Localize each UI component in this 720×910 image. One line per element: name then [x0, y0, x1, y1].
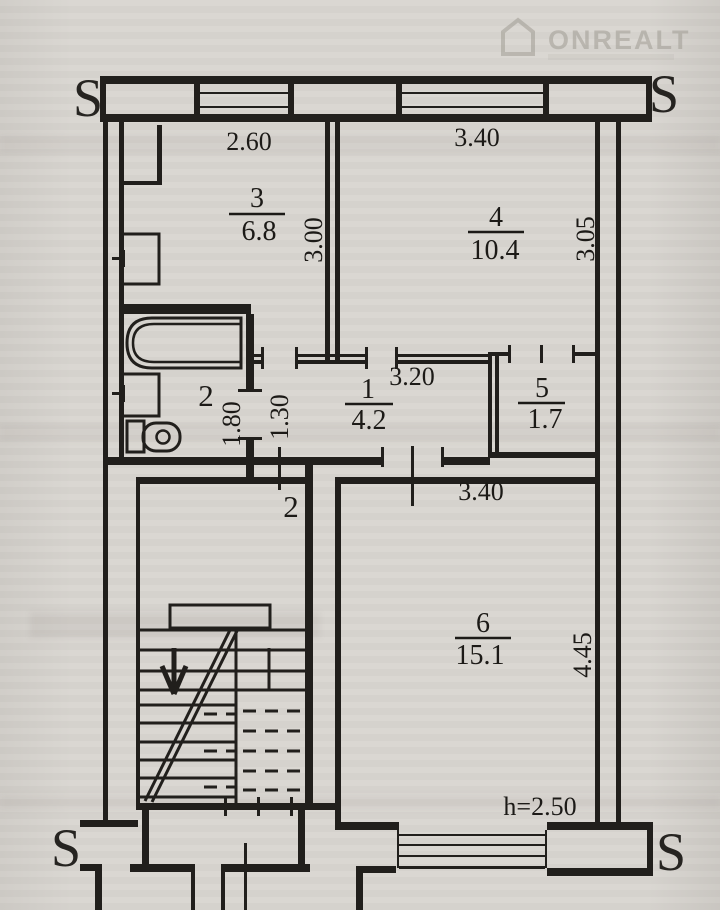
room-closet-number: 5 [535, 373, 549, 404]
room-kitchen-number: 3 [250, 183, 264, 214]
dim-living-depth: 4.45 [568, 632, 597, 678]
window-top-right-icon [402, 92, 543, 108]
room-4-number: 4 [489, 202, 503, 233]
dim-kitchen-depth: 3.00 [299, 217, 328, 263]
dim-kitchen-window: 2.60 [226, 127, 272, 156]
ceiling-height-label: h=2.50 [503, 792, 576, 821]
room-closet-area: 1.7 [528, 404, 563, 435]
room-bath-number: 2 [198, 378, 214, 413]
down-arrow-icon [162, 648, 186, 694]
room-hall-area: 4.2 [352, 405, 387, 436]
watermark-subline [548, 54, 674, 60]
house-logo-icon [503, 20, 533, 54]
bathtub-icon [127, 318, 241, 368]
stair-stringer [152, 631, 237, 802]
room-living-number: 6 [476, 608, 490, 639]
watermark: ONREALT [503, 20, 691, 60]
room-kitchen-area: 6.8 [242, 216, 277, 247]
window-bottom-icon [397, 830, 547, 869]
dim-room4-window: 3.40 [454, 123, 500, 152]
room-hall-number: 1 [361, 374, 375, 405]
window-top-left-icon [200, 92, 288, 108]
dim-hall-arm-width: 1.30 [265, 394, 294, 440]
dim-bath-width: 1.80 [217, 401, 246, 447]
dim-hall-width: 3.20 [389, 362, 435, 391]
room-4-area: 10.4 [471, 235, 520, 266]
vestibule-walls [130, 810, 310, 910]
compass-s-top-right: S [649, 64, 679, 124]
dim-living-width: 3.40 [458, 477, 504, 506]
room-living-area: 15.1 [456, 640, 505, 671]
floorplan-scan: ONREALT [0, 0, 720, 910]
watermark-text: ONREALT [548, 25, 691, 55]
compass-s-bottom-left: S [51, 818, 81, 878]
dim-room4-depth: 3.05 [571, 216, 600, 262]
apartment-number-label: 2 [283, 489, 299, 524]
stair-landing [170, 605, 270, 628]
toilet-icon [127, 421, 180, 452]
walls [80, 76, 653, 910]
staircase [140, 605, 307, 803]
stair-stringer [145, 630, 230, 801]
compass-s-top-left: S [73, 68, 103, 128]
compass-s-bottom-right: S [656, 822, 686, 882]
